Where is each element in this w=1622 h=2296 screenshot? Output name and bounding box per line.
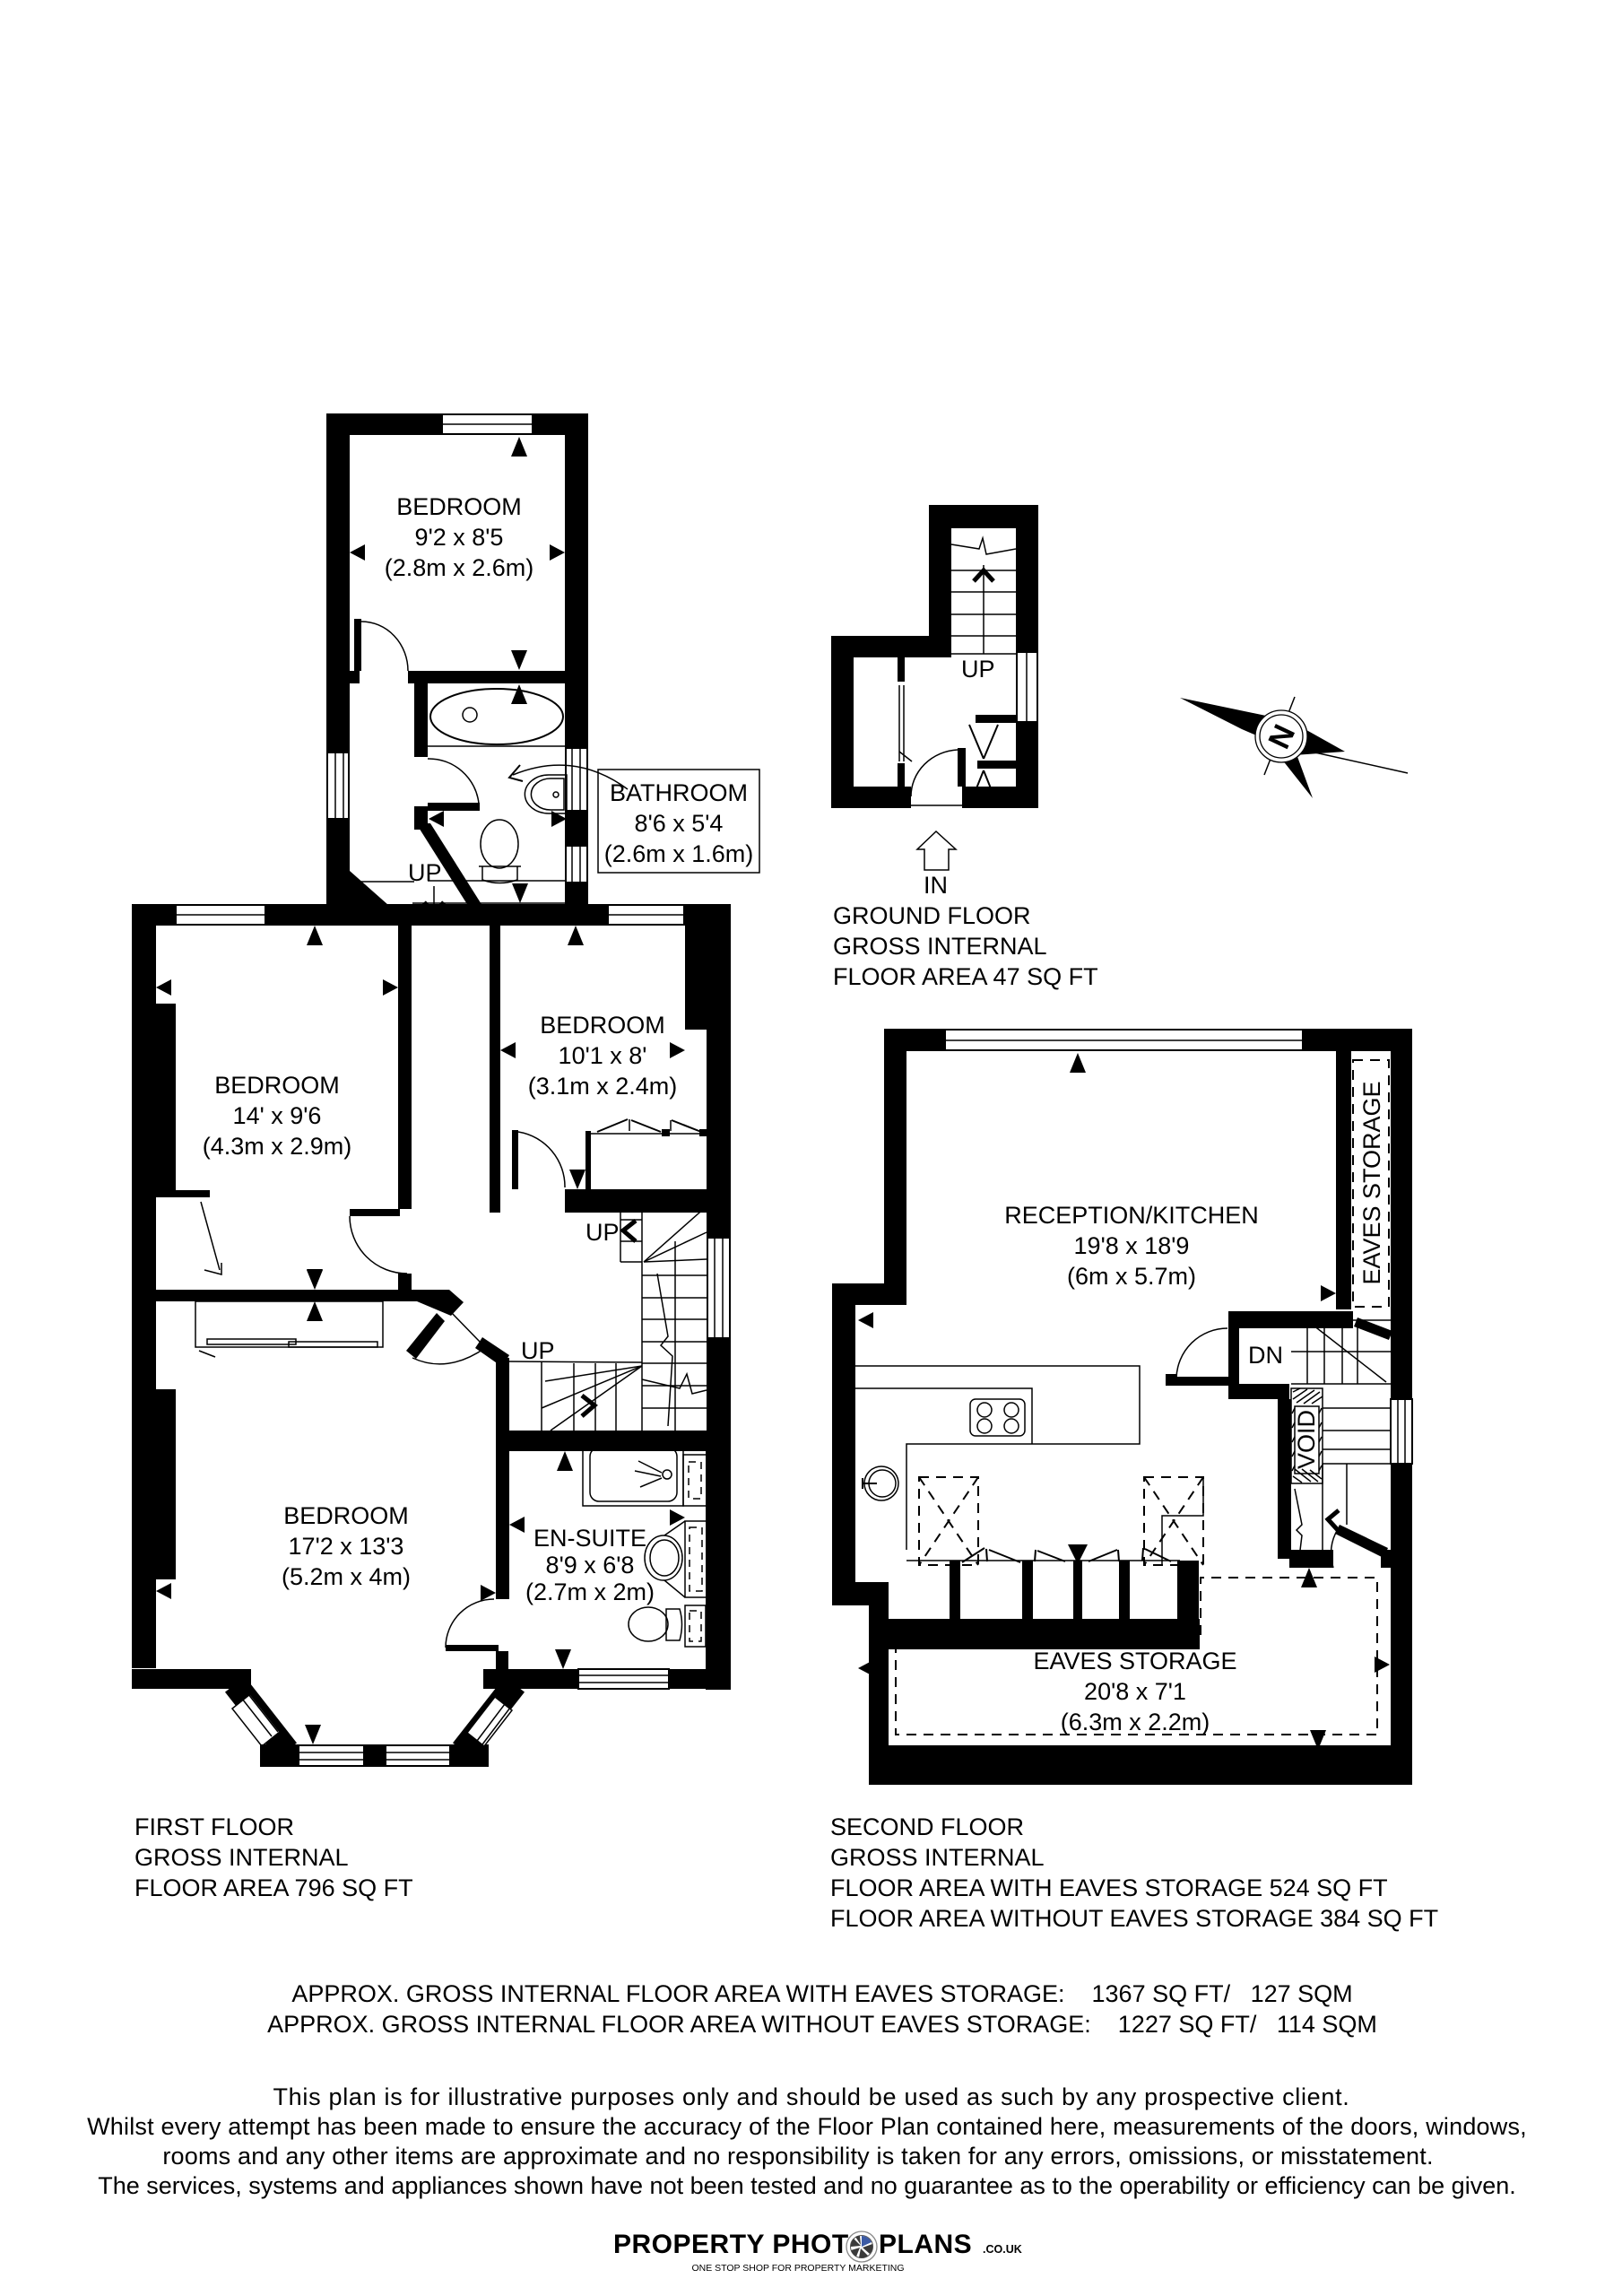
svg-text:PROPERTY PHOT: PROPERTY PHOT: [613, 2230, 849, 2259]
svg-text:8'9 x 6'8: 8'9 x 6'8: [546, 1552, 635, 1578]
svg-text:BATHROOM: BATHROOM: [610, 779, 748, 806]
svg-text:FIRST FLOOR: FIRST FLOOR: [134, 1813, 294, 1840]
svg-text:rooms and any other items are: rooms and any other items are approximat…: [162, 2143, 1433, 2170]
svg-text:8'6 x 5'4: 8'6 x 5'4: [635, 810, 724, 837]
svg-text:BEDROOM: BEDROOM: [283, 1502, 409, 1529]
svg-text:17'2 x 13'3: 17'2 x 13'3: [289, 1533, 404, 1560]
svg-text:20'8 x 7'1: 20'8 x 7'1: [1084, 1678, 1186, 1705]
svg-text:EAVES STORAGE: EAVES STORAGE: [1033, 1648, 1236, 1674]
svg-text:RECEPTION/KITCHEN: RECEPTION/KITCHEN: [1004, 1202, 1259, 1229]
svg-text:BEDROOM: BEDROOM: [540, 1012, 665, 1039]
svg-text:UP: UP: [585, 1219, 620, 1246]
svg-text:ONE STOP SHOP FOR PROPERTY MAR: ONE STOP SHOP FOR PROPERTY MARKETING: [691, 2263, 904, 2274]
svg-text:GROSS INTERNAL: GROSS INTERNAL: [830, 1844, 1045, 1871]
svg-text:9'2 x 8'5: 9'2 x 8'5: [415, 524, 504, 551]
svg-text:FLOOR AREA 796 SQ FT: FLOOR AREA 796 SQ FT: [134, 1874, 413, 1901]
svg-text:FLOOR AREA WITH EAVES STORAGE: FLOOR AREA WITH EAVES STORAGE 524 SQ FT: [830, 1874, 1388, 1901]
svg-text:(6m x 5.7m): (6m x 5.7m): [1067, 1263, 1196, 1290]
svg-text:FLOOR AREA 47 SQ FT: FLOOR AREA 47 SQ FT: [833, 963, 1098, 990]
svg-text:.CO.UK: .CO.UK: [983, 2243, 1022, 2256]
svg-text:(2.8m x 2.6m): (2.8m x 2.6m): [385, 554, 534, 581]
svg-text:GROSS INTERNAL: GROSS INTERNAL: [134, 1844, 349, 1871]
svg-text:PLANS: PLANS: [879, 2230, 972, 2259]
svg-text:FLOOR AREA WITHOUT EAVES STORA: FLOOR AREA WITHOUT EAVES STORAGE 384 SQ …: [830, 1905, 1438, 1932]
svg-text:DN: DN: [1248, 1342, 1283, 1369]
svg-text:(2.7m x 2m): (2.7m x 2m): [525, 1578, 655, 1605]
svg-text:(6.3m x 2.2m): (6.3m x 2.2m): [1061, 1709, 1210, 1735]
svg-text:UP: UP: [521, 1337, 555, 1364]
svg-text:EN-SUITE: EN-SUITE: [533, 1525, 646, 1552]
svg-text:The services, systems and appl: The services, systems and appliances sho…: [98, 2172, 1515, 2199]
svg-text:(4.3m x 2.9m): (4.3m x 2.9m): [203, 1133, 352, 1160]
svg-text:APPROX. GROSS INTERNAL FLOOR A: APPROX. GROSS INTERNAL FLOOR AREA WITH E…: [291, 1980, 1352, 2007]
svg-text:SECOND FLOOR: SECOND FLOOR: [830, 1813, 1024, 1840]
svg-text:BEDROOM: BEDROOM: [396, 493, 522, 520]
svg-text:GROUND FLOOR: GROUND FLOOR: [833, 902, 1031, 929]
svg-text:EAVES STORAGE: EAVES STORAGE: [1358, 1081, 1385, 1284]
svg-text:(2.6m x 1.6m): (2.6m x 1.6m): [604, 840, 754, 867]
svg-text:Whilst every attempt has been: Whilst every attempt has been made to en…: [87, 2113, 1527, 2140]
svg-text:(3.1m x 2.4m): (3.1m x 2.4m): [528, 1073, 678, 1100]
svg-text:IN: IN: [924, 872, 948, 899]
svg-text:19'8 x 18'9: 19'8 x 18'9: [1074, 1232, 1190, 1259]
svg-text:(5.2m x 4m): (5.2m x 4m): [282, 1563, 411, 1590]
svg-text:UP: UP: [961, 656, 995, 683]
svg-text:APPROX. GROSS INTERNAL FLOOR A: APPROX. GROSS INTERNAL FLOOR AREA WITHOU…: [267, 2011, 1377, 2038]
svg-text:VOID: VOID: [1293, 1410, 1320, 1469]
svg-text:10'1 x 8': 10'1 x 8': [559, 1042, 647, 1069]
svg-text:BEDROOM: BEDROOM: [214, 1072, 340, 1099]
svg-text:14' x 9'6: 14' x 9'6: [233, 1102, 322, 1129]
svg-text:GROSS INTERNAL: GROSS INTERNAL: [833, 933, 1047, 960]
svg-text:This plan is for illustrative: This plan is for illustrative purposes o…: [273, 2083, 1349, 2110]
